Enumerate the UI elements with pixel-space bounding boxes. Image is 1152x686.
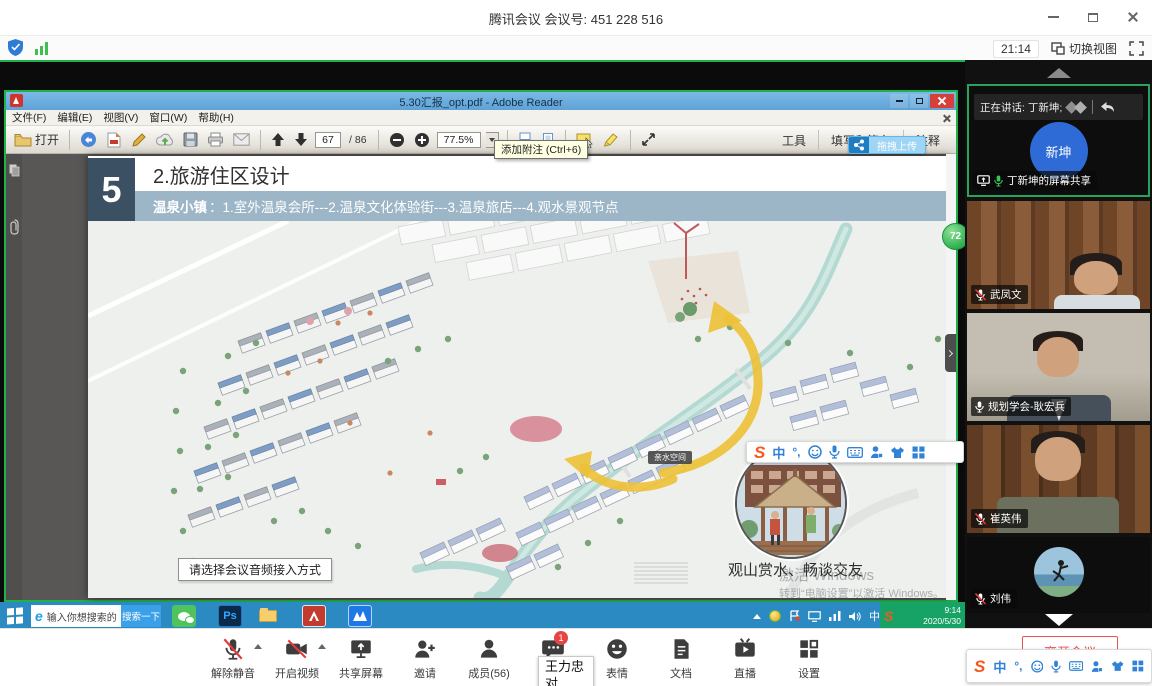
network-signal-icon [35, 41, 50, 55]
page-number-input[interactable]: 67 [315, 132, 341, 148]
screen-share-icon [348, 636, 374, 662]
restore-icon [916, 98, 923, 104]
chevron-right-icon [946, 349, 953, 356]
settings-grid-icon [796, 636, 822, 662]
taskbar-meeting-indicator[interactable]: S 9:14 2020/5/30 [880, 602, 965, 628]
save-button[interactable] [181, 129, 200, 151]
reader-menubar: 文件(F) 编辑(E) 视图(V) 窗口(W) 帮助(H) [6, 110, 956, 126]
reader-toolbar: 打开 67 / 86 [6, 126, 956, 154]
tencent-meeting-window: 腾讯会议 会议号: 451 228 516 21:14 切换视图 [0, 0, 1152, 686]
ime-punctuation-icon[interactable]: °, [1014, 659, 1022, 673]
skin-shirt-icon[interactable] [890, 446, 905, 459]
printer-icon [207, 132, 224, 147]
close-icon [1127, 11, 1139, 23]
photoshop-taskbar-icon[interactable]: Ps [218, 605, 242, 627]
zoom-in-button[interactable] [412, 129, 432, 151]
speedball-badge[interactable]: 72 [942, 223, 965, 250]
chat-message-preview: 对 [545, 675, 587, 686]
taskbar-search-box[interactable]: e 输入你想搜索的 [31, 605, 121, 627]
speaking-label: 正在讲话: 丁新坤; [980, 100, 1062, 115]
speaking-indicator-overlay: 正在讲话: 丁新坤; [974, 94, 1143, 120]
plaza [510, 416, 562, 442]
meeting-title: 腾讯会议 会议号: 451 228 516 [0, 9, 1152, 28]
participants-sidebar: 正在讲话: 丁新坤; 新坤 丁新坤的屏幕共享 [965, 60, 1152, 628]
document-area[interactable]: 5 2.旅游住区设计 温泉小镇：1.室外温泉会所---2.温泉文化体验街---3… [22, 154, 946, 600]
reader-titlebar[interactable]: 5.30汇报_opt.pdf - Adobe Reader [6, 92, 956, 110]
chat-sender-name: 王力忠 [545, 658, 587, 675]
arrow-up-icon [271, 132, 285, 147]
close-button[interactable] [1120, 6, 1146, 28]
sogou-ime-bar-local[interactable]: S 中 °, [966, 649, 1152, 683]
participant-name: 崔英伟 [990, 511, 1022, 526]
docs-button[interactable]: 文档 [654, 636, 708, 681]
share-nodes-icon [853, 139, 865, 151]
section-number-box: 5 [88, 158, 135, 221]
save-disk-icon [183, 132, 198, 147]
reader-title: 5.30汇报_opt.pdf - Adobe Reader [6, 94, 956, 110]
pen-icon [131, 132, 147, 148]
menu-file[interactable]: 文件(F) [12, 110, 46, 125]
page-total: / 86 [349, 134, 367, 146]
maximize-icon [1088, 13, 1098, 22]
previous-page-button[interactable] [269, 129, 287, 151]
scroll-down-arrow[interactable] [1045, 614, 1073, 626]
arrow-down-icon [294, 132, 308, 147]
reader-scrollbar[interactable] [946, 154, 956, 600]
previous-view-button[interactable] [78, 129, 99, 151]
cloud-upload-button[interactable] [154, 129, 176, 151]
mic-muted-icon [220, 636, 246, 662]
system-tray: 中 [753, 602, 880, 628]
print-button[interactable] [205, 129, 226, 151]
audio-connect-tooltip: 请选择会议音频接入方式 [178, 558, 332, 581]
adobe-reader-taskbar-icon[interactable] [302, 605, 326, 627]
tray-expand-icon[interactable] [753, 614, 761, 619]
action-center-flag-icon[interactable] [789, 610, 800, 622]
inset-label: 亲水空间 [648, 451, 692, 464]
chat-unread-badge: 1 [554, 631, 568, 645]
participant-name: 规划学会-耿宏兵 [988, 399, 1065, 414]
zoom-level-input[interactable]: 77.5% [437, 132, 481, 148]
open-button[interactable]: 打开 [12, 129, 61, 151]
voice-input-icon[interactable] [1051, 659, 1061, 674]
file-explorer-taskbar-icon[interactable] [256, 605, 280, 627]
meeting-logo-icon [352, 610, 368, 622]
live-button[interactable]: 直播 [718, 636, 772, 681]
sign-button[interactable] [129, 129, 149, 151]
members-button[interactable]: 成员(56) [462, 636, 516, 681]
camera-muted-icon [284, 636, 310, 662]
sogou-tray-icon: S [884, 609, 893, 623]
invite-person-icon [412, 636, 438, 662]
ime-toolbox-icon[interactable] [912, 446, 925, 459]
plus-circle-icon [414, 132, 430, 148]
tools-pane-button[interactable]: 工具 [770, 130, 818, 150]
sogou-logo-icon: S [974, 658, 985, 675]
adobe-reader-window: 5.30汇报_opt.pdf - Adobe Reader 文件(F) 编辑(E… [4, 90, 958, 602]
add-note-tooltip: 添加附注 (Ctrl+6) [494, 140, 588, 159]
start-button[interactable] [0, 602, 30, 628]
optimizer-ball-icon[interactable] [769, 610, 781, 622]
maximize-button[interactable] [1080, 6, 1106, 28]
avatar [1034, 547, 1084, 597]
reader-restore-button[interactable] [910, 94, 928, 108]
windows-taskbar: e 输入你想搜索的 搜索一下 Ps 中 [0, 602, 965, 628]
next-page-button[interactable] [292, 129, 310, 151]
scroll-up-arrow[interactable] [1047, 68, 1071, 78]
ime-profile-icon[interactable] [1091, 659, 1103, 674]
cloud-upload-icon [156, 132, 174, 147]
panel-expander-tab[interactable] [945, 334, 956, 372]
skin-shirt-icon[interactable] [1111, 659, 1124, 673]
email-button[interactable] [231, 129, 252, 151]
minus-circle-icon [389, 132, 405, 148]
unmute-button[interactable]: 解除静音 [206, 636, 260, 681]
ime-mode-chinese[interactable]: 中 [993, 657, 1006, 676]
open-folder-icon [14, 133, 32, 147]
mic-options-caret[interactable] [254, 644, 262, 649]
live-tv-icon [732, 636, 758, 662]
reply-arrow-icon[interactable] [1100, 101, 1115, 114]
menu-window[interactable]: 窗口(W) [149, 110, 187, 125]
participant-name: 刘伟 [990, 591, 1011, 606]
ime-toolbox-icon[interactable] [1132, 659, 1144, 673]
menu-help[interactable]: 帮助(H) [198, 110, 234, 125]
emoji-button[interactable]: 表情 [590, 636, 644, 681]
highlighter-icon [603, 132, 620, 148]
screen-share-icon [977, 175, 990, 186]
start-video-button[interactable]: 开启视频 [270, 636, 324, 681]
document-icon [668, 636, 694, 662]
main-area: 5.30汇报_opt.pdf - Adobe Reader 文件(F) 编辑(E… [0, 60, 1152, 628]
pdf-create-button[interactable] [104, 129, 124, 151]
ime-profile-icon[interactable] [870, 445, 883, 459]
wechat-taskbar-icon[interactable] [172, 605, 196, 627]
windows-logo-icon [7, 608, 23, 625]
participant-name: 丁新坤的屏幕共享 [1007, 173, 1091, 188]
reader-minimize-button[interactable] [890, 94, 908, 108]
menu-view[interactable]: 视图(V) [103, 110, 138, 125]
page-subtitle: 温泉小镇：1.室外温泉会所---2.温泉文化体验街---3.温泉旅店---4.观… [135, 191, 950, 221]
speaker-icon[interactable] [849, 611, 861, 622]
reader-close-button[interactable] [930, 94, 954, 108]
pc-status-icon[interactable] [808, 611, 821, 622]
participant-name: 武凤文 [990, 287, 1022, 302]
edge-browser-icon: e [35, 608, 43, 624]
ime-mode-chinese[interactable]: 中 [772, 443, 785, 462]
screen-share-stage: 5.30汇报_opt.pdf - Adobe Reader 文件(F) 编辑(E… [0, 60, 965, 628]
page-thumbnails-icon[interactable] [9, 164, 20, 177]
emoji-picker-icon[interactable] [1031, 659, 1044, 674]
waterfront-inset-image [735, 447, 847, 559]
diagonal-arrows-icon [641, 132, 656, 147]
page-title: 2.旅游住区设计 [135, 158, 950, 191]
mic-active-icon [994, 175, 1003, 187]
envelope-icon [233, 133, 250, 146]
smiley-icon [604, 636, 630, 662]
settings-button[interactable]: 设置 [782, 636, 836, 681]
share-screen-button[interactable]: 共享屏幕 [334, 636, 388, 681]
inset-caption: 观山赏水、畅谈交友 [728, 559, 928, 580]
attachments-paperclip-icon[interactable] [10, 219, 19, 235]
taskbar-clock: 9:14 2020/5/30 [923, 605, 961, 626]
mic-muted-icon [975, 513, 986, 525]
pdf-create-icon [106, 132, 122, 148]
close-icon [938, 97, 946, 105]
document-close-icon[interactable] [942, 112, 952, 124]
folder-icon [259, 610, 277, 622]
participant-tile[interactable]: 崔英伟 [967, 425, 1150, 533]
ime-punctuation-icon[interactable]: °, [792, 445, 800, 459]
meeting-clock: 21:14 [993, 40, 1039, 58]
participant-tile[interactable]: 规划学会-耿宏兵 [967, 313, 1150, 421]
sogou-ime-bar-shared[interactable]: S 中 °, [746, 441, 964, 463]
switch-view-button[interactable]: 切换视图 [1051, 40, 1117, 57]
sogou-logo-icon: S [754, 444, 765, 461]
invite-button[interactable]: 邀请 [398, 636, 452, 681]
minimize-button[interactable] [1040, 6, 1066, 28]
security-shield-icon [8, 39, 23, 56]
video-options-caret[interactable] [318, 644, 326, 649]
menu-edit[interactable]: 编辑(E) [57, 110, 92, 125]
mic-muted-icon [975, 289, 986, 301]
minimize-icon [896, 100, 903, 102]
drag-upload-badge[interactable]: 拖拽上传 [848, 136, 926, 154]
mic-active-icon [975, 401, 984, 413]
soft-keyboard-icon[interactable] [847, 447, 863, 458]
chat-notification-bubble[interactable]: 王力忠 对 [538, 656, 594, 686]
tray-ime-indicator[interactable]: 中 [869, 608, 880, 624]
wechat-bubbles-icon [178, 612, 190, 621]
network-bars-icon[interactable] [829, 611, 841, 621]
search-placeholder: 输入你想搜索的 [47, 609, 117, 624]
fullscreen-button[interactable] [1129, 41, 1144, 56]
emoji-picker-icon[interactable] [808, 445, 822, 459]
jumping-person-photo [1034, 547, 1084, 597]
participant-tile-sharing[interactable]: 正在讲话: 丁新坤; 新坤 丁新坤的屏幕共享 [967, 84, 1150, 197]
titlebar: 腾讯会议 会议号: 451 228 516 [0, 0, 1152, 35]
search-go-button[interactable]: 搜索一下 [121, 605, 161, 627]
meeting-statusbar: 21:14 切换视图 [0, 35, 1152, 60]
participant-tile[interactable]: 武凤文 [967, 201, 1150, 309]
highlight-button[interactable] [601, 129, 622, 151]
acrobat-icon [307, 609, 321, 623]
participant-tile[interactable]: 刘伟 [967, 537, 1150, 613]
pavilion-illustration [737, 449, 847, 559]
expand-toolbar-button[interactable] [639, 129, 658, 151]
switch-view-icon [1051, 42, 1065, 55]
tencent-meeting-taskbar-icon[interactable] [348, 605, 372, 627]
zoom-out-button[interactable] [387, 129, 407, 151]
round-arrow-doc-icon [80, 131, 97, 148]
soft-keyboard-icon[interactable] [1069, 660, 1083, 672]
mic-muted-icon [975, 593, 986, 605]
reader-nav-strip [6, 154, 22, 600]
pdf-page: 5 2.旅游住区设计 温泉小镇：1.室外温泉会所---2.温泉文化体验街---3… [88, 156, 950, 598]
voice-input-icon[interactable] [829, 445, 840, 459]
member-person-icon [476, 636, 502, 662]
minimize-icon [1048, 16, 1059, 18]
